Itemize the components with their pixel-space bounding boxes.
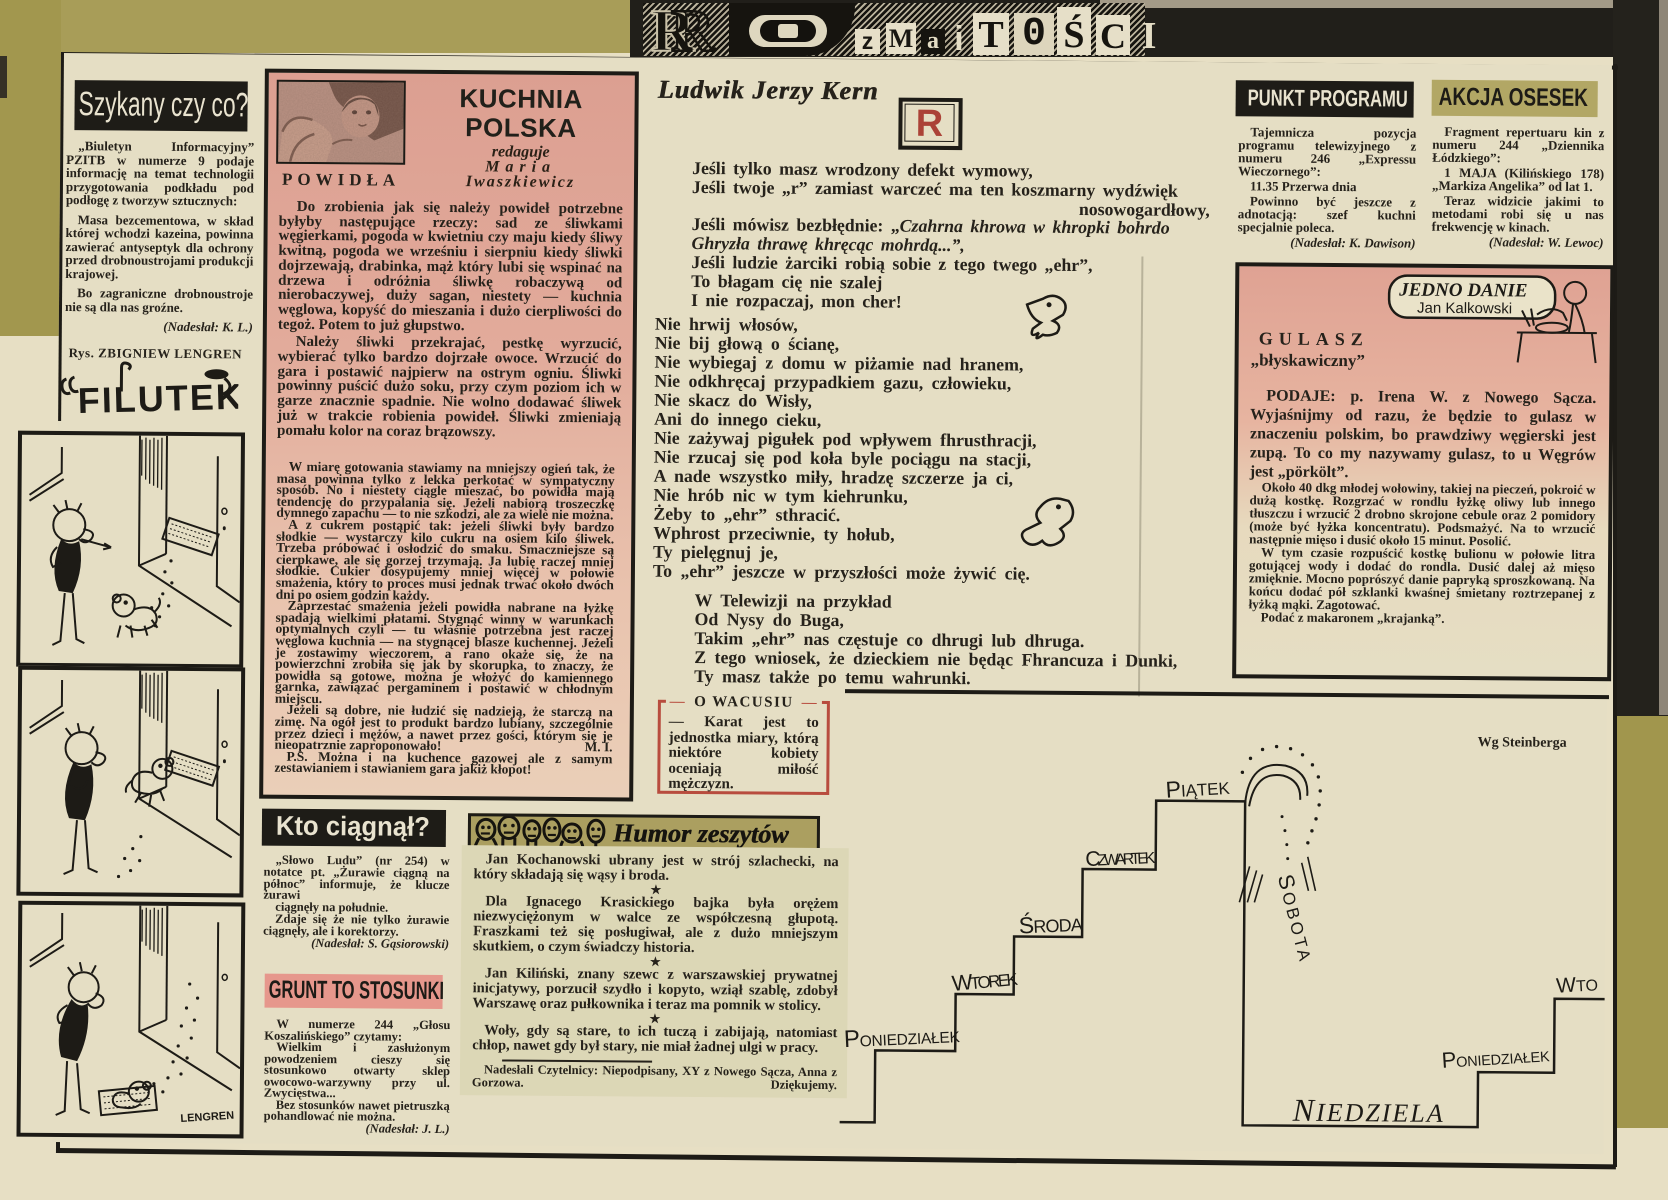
svg-text:PONIEDZIAŁEK: PONIEDZIAŁEK xyxy=(843,1021,961,1053)
svg-text:JEDNO DANIE: JEDNO DANIE xyxy=(1398,280,1527,302)
svg-text:PIĄTEK: PIĄTEK xyxy=(1165,773,1231,803)
svg-text:WTOREK: WTOREK xyxy=(951,965,1020,996)
svg-text:ŚRODA: ŚRODA xyxy=(1018,909,1083,939)
svg-text:R: R xyxy=(671,3,715,59)
svg-text:FILUTEK: FILUTEK xyxy=(77,376,238,421)
svg-text:SOBOTA: SOBOTA xyxy=(1273,872,1319,964)
svg-text:CZWARTEK: CZWARTEK xyxy=(1085,845,1156,871)
svg-text:LENGREN: LENGREN xyxy=(180,1110,234,1125)
svg-text:NIEDZIELA: NIEDZIELA xyxy=(1292,1092,1443,1129)
svg-text:WTO: WTO xyxy=(1556,972,1599,998)
svg-text:PONIEDZIAŁEK: PONIEDZIAŁEK xyxy=(1441,1041,1551,1073)
svg-text:Jan Kalkowski: Jan Kalkowski xyxy=(1417,300,1512,318)
